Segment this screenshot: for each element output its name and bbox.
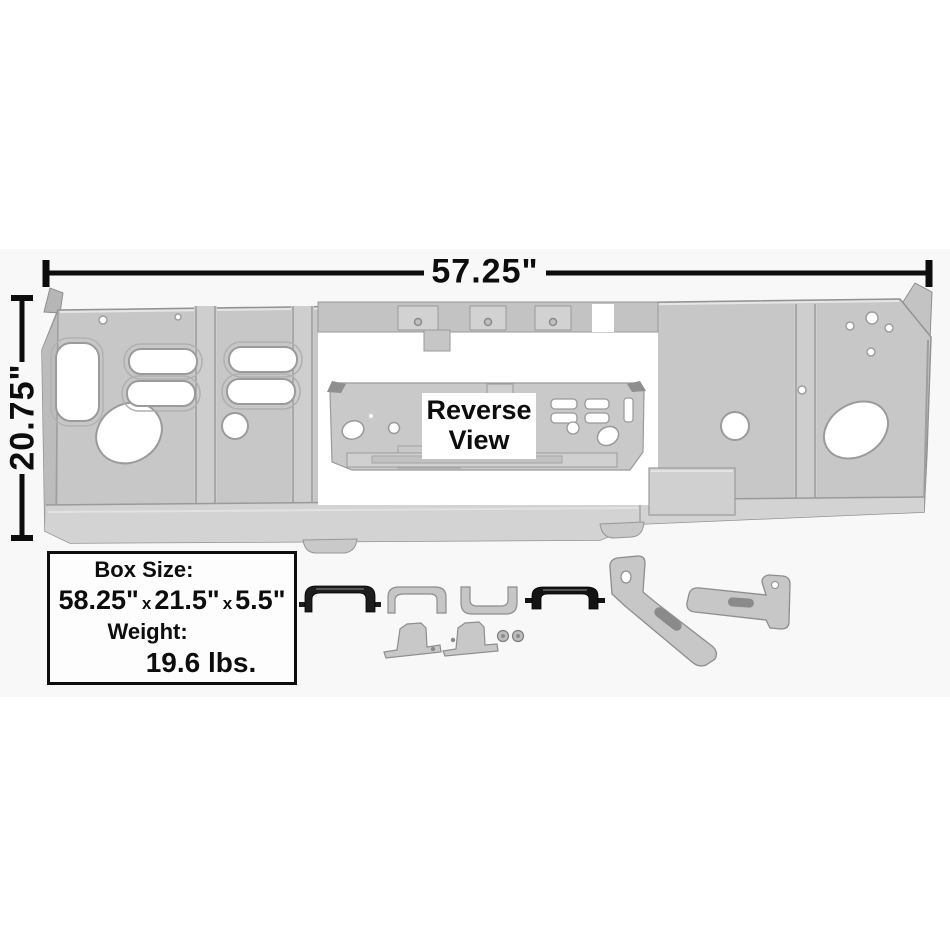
box-size-value: 58.25"x21.5"x5.5" [50,585,294,616]
bottom-sill [45,497,924,553]
box-size-separator: x [139,594,154,613]
sill-tab-left [303,539,357,553]
box-size-width: 58.25" [58,585,138,615]
width-dimension-label: 57.25" [431,253,538,292]
sill-tab-right [600,522,644,538]
product-figure [0,0,950,950]
shipping-info-box: Box Size: 58.25"x21.5"x5.5" Weight: 19.6… [47,551,297,685]
height-dimension-label: 20.75" [4,363,43,470]
hat-bracket-1 [384,623,441,658]
nut-1 [498,631,509,642]
gray-bracket-1 [388,587,446,613]
box-size-height: 5.5" [235,585,285,615]
nut-2 [513,631,524,642]
box-size-depth: 21.5" [154,585,219,615]
corner-bracket-2 [687,575,790,629]
right-box-protrusion [649,468,735,515]
center-latch-tab [424,330,450,351]
hardware-parts [299,556,790,666]
box-size-label: Box Size: [50,557,238,583]
gray-bracket-2 [461,587,517,614]
product-image: 57.25" 20.75" Reverse View Box Size: 58.… [0,0,950,950]
reverse-view-label: Reverse View [422,393,536,459]
box-size-separator: x [220,594,235,613]
black-bracket-2 [525,587,605,609]
right-round-hole [721,412,749,440]
weight-label: Weight: [50,619,245,645]
weight-value: 19.6 lbs. [50,647,294,679]
black-bracket-1 [299,586,381,612]
left-round-hole [222,413,248,439]
left-vertical-cutout [51,338,103,426]
